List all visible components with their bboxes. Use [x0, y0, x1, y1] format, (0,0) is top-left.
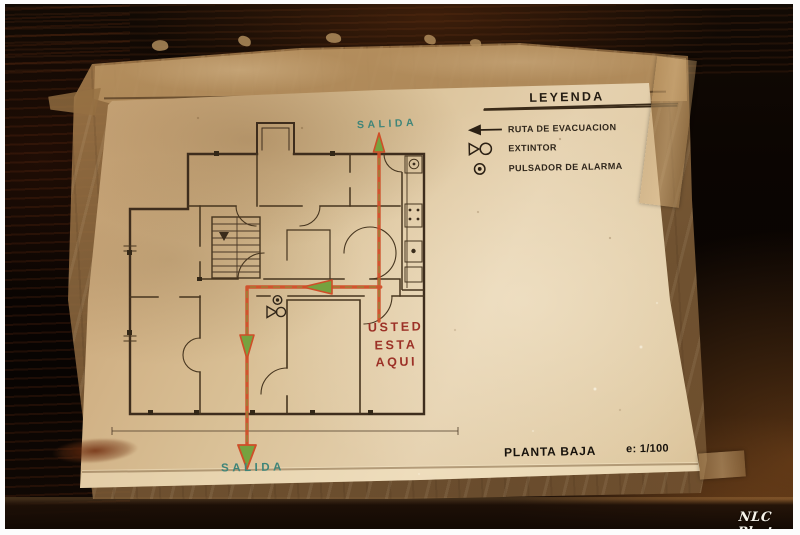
- evacuation-route-arrow-icon: [460, 119, 508, 140]
- alarm-push-button-icon: [461, 158, 509, 179]
- route-arrow-down-mid: [240, 335, 254, 359]
- evacuation-route: [238, 133, 385, 469]
- photographer-watermark: NLC Photo: [736, 510, 800, 535]
- you-are-here-line: USTED: [355, 318, 435, 337]
- floor-label: PLANTA BAJA: [504, 444, 596, 460]
- you-are-here-line: AQUI: [356, 353, 436, 372]
- fire-extinguisher-icon: [460, 138, 508, 159]
- exit-label-bottom: SALIDA: [214, 461, 292, 474]
- scale-label: e: 1/100: [626, 443, 669, 458]
- route-arrow-left: [303, 280, 332, 294]
- dimension-line: [112, 427, 458, 435]
- you-are-here-label: USTED ESTA AQUI: [355, 318, 436, 372]
- plan-symbols: [267, 296, 286, 318]
- photo-of-evacuation-plan: LEYENDA RUTA DE EVACUACION EXTINTOR: [0, 0, 800, 535]
- you-are-here-line: ESTA: [356, 336, 436, 355]
- floor-and-scale: PLANTA BAJA e: 1/100: [504, 443, 669, 460]
- route-arrow-up: [374, 133, 385, 152]
- tape-right-tab: [698, 450, 746, 479]
- legend-item-label: EXTINTOR: [508, 142, 557, 153]
- legend-rule: [483, 105, 677, 111]
- wall-piers: [127, 151, 373, 415]
- legend-item-label: RUTA DE EVACUACION: [508, 122, 617, 134]
- legend-item-label: PULSADOR DE ALARMA: [509, 161, 623, 173]
